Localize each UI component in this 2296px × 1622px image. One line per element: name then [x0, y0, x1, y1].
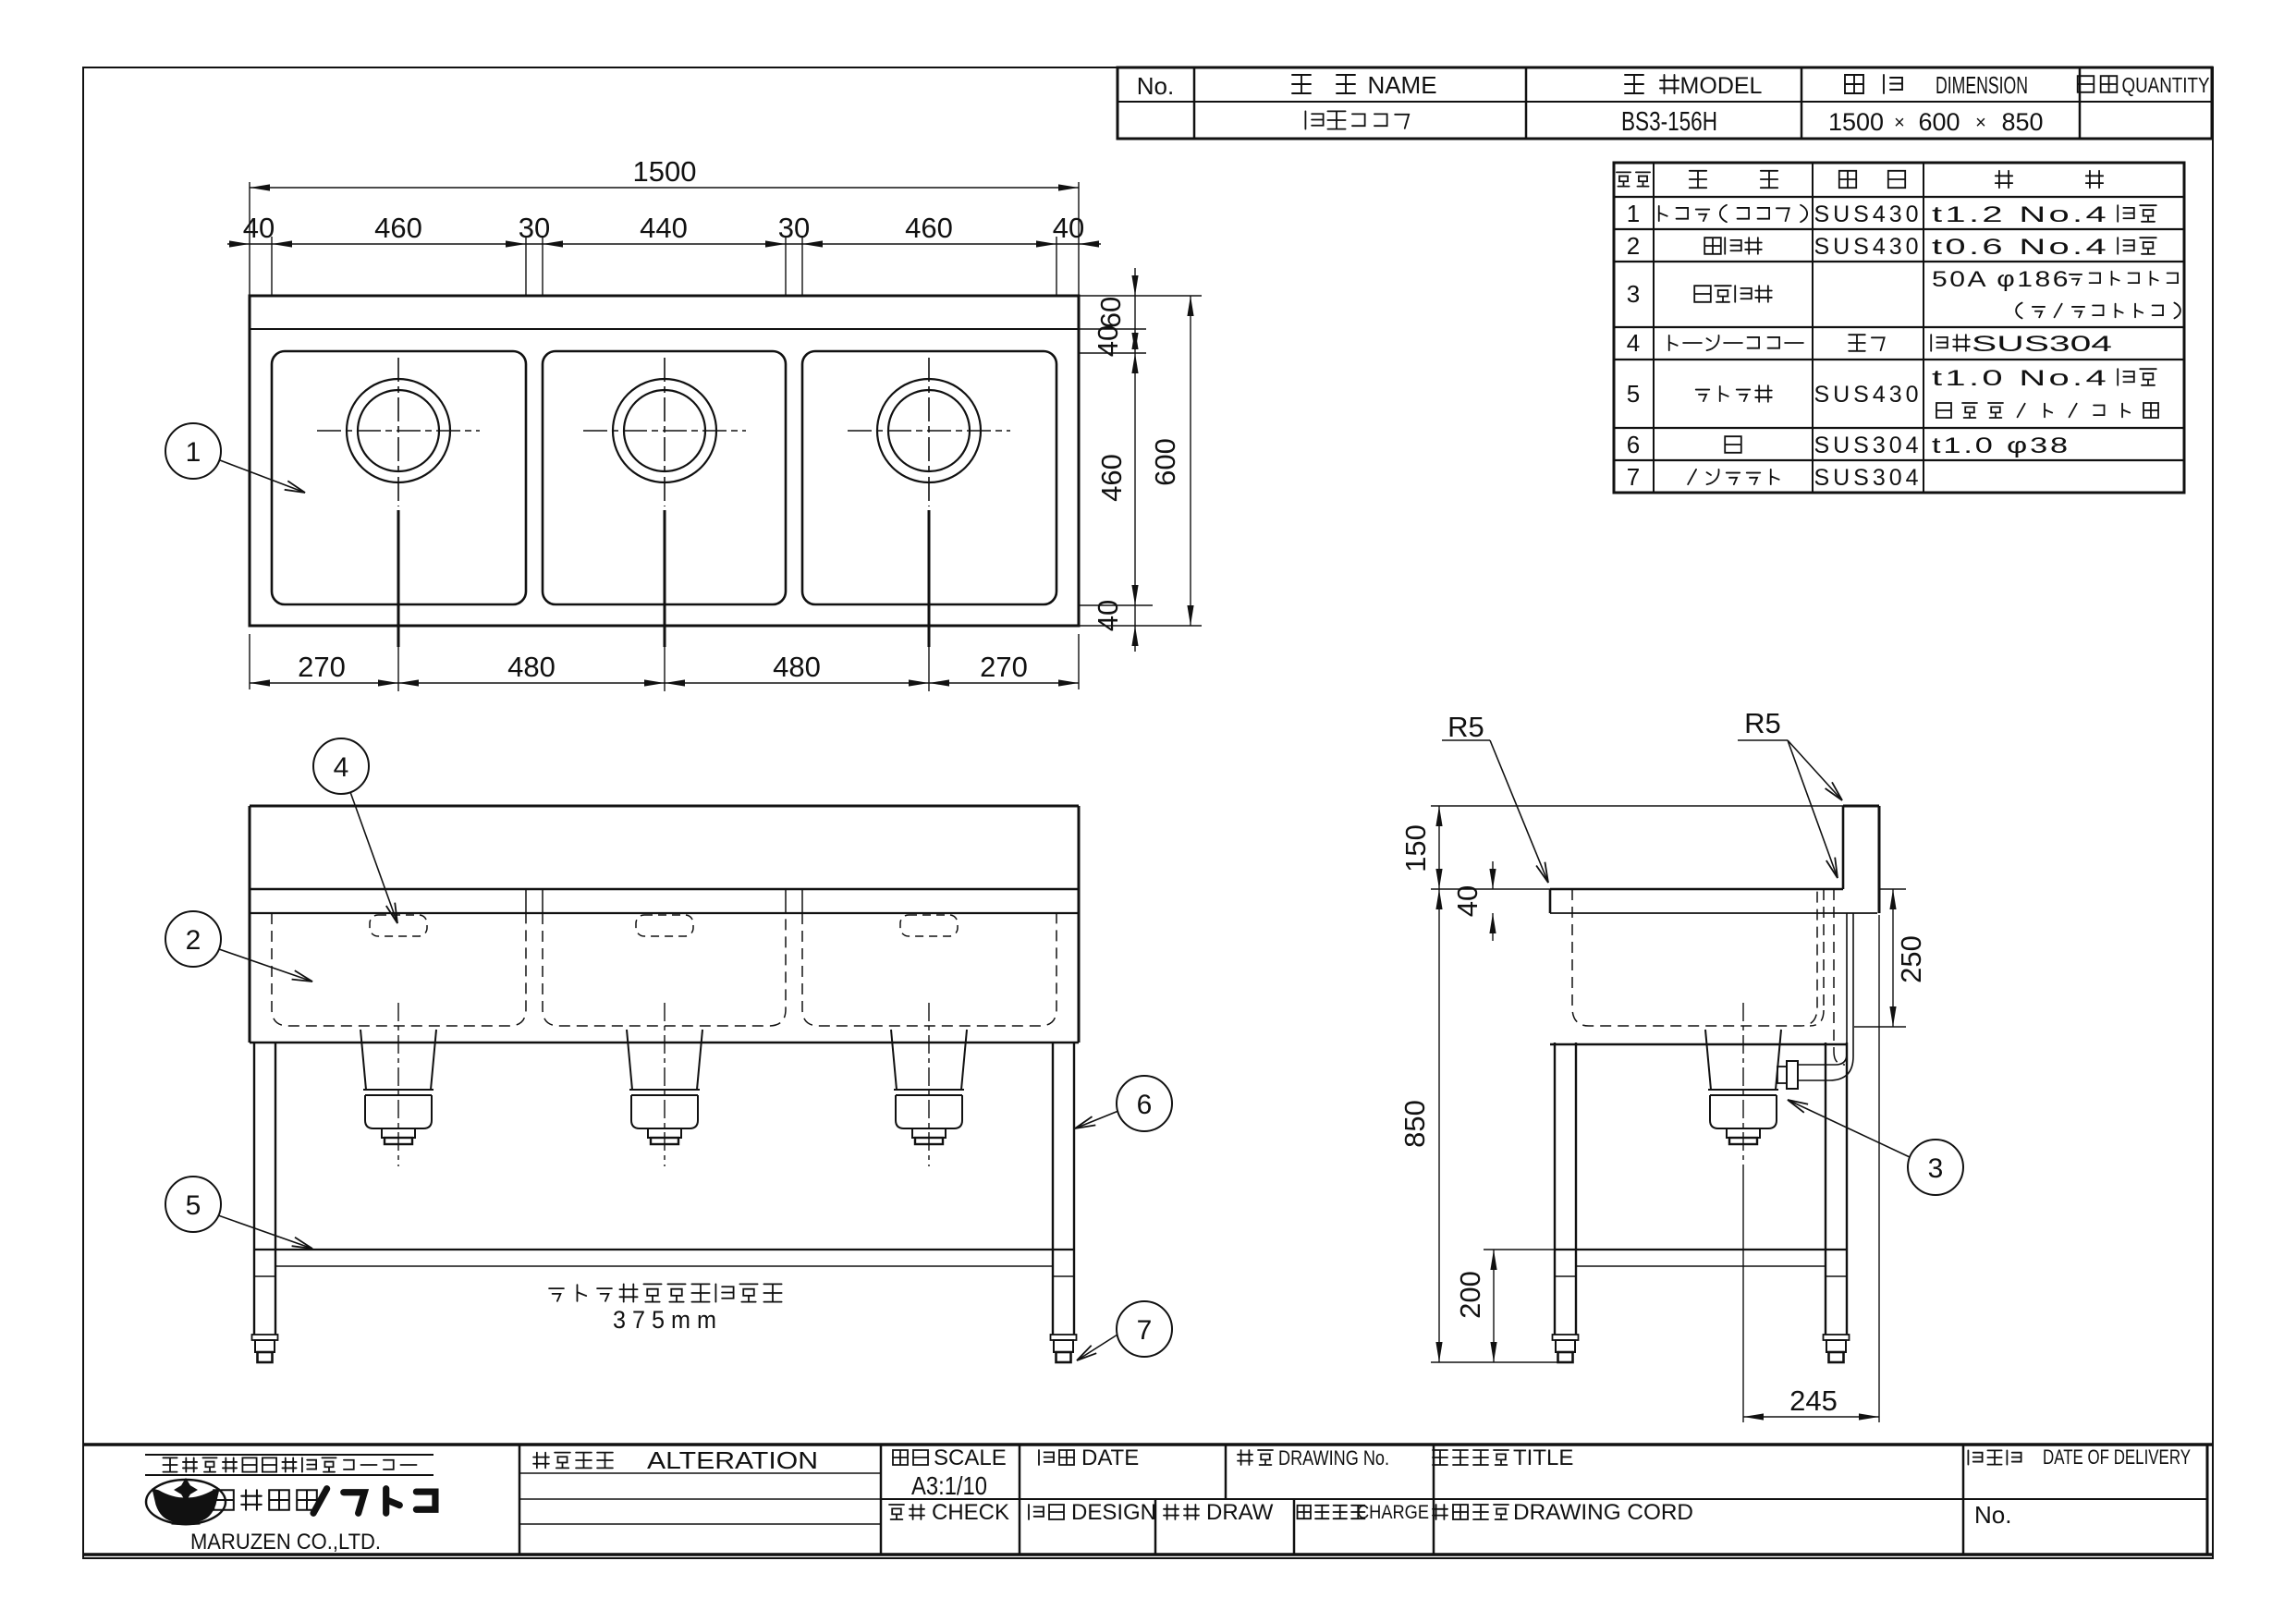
svg-text:×: × [1975, 113, 1986, 133]
svg-text:R5: R5 [1744, 707, 1781, 739]
svg-text:CHECK: CHECK [932, 1500, 1009, 1525]
svg-text:SUS430: SUS430 [1814, 382, 1922, 408]
svg-text:NAME: NAME [1367, 71, 1436, 99]
svg-text:CHARGE: CHARGE [1357, 1502, 1429, 1523]
svg-text:200: 200 [1454, 1271, 1486, 1319]
svg-text:5: 5 [1627, 380, 1640, 408]
svg-text:1: 1 [1627, 200, 1640, 227]
svg-text:40: 40 [243, 212, 275, 244]
svg-text:TITLE: TITLE [1513, 1445, 1573, 1470]
svg-text:ALTERATION: ALTERATION [647, 1446, 818, 1474]
svg-text:440: 440 [640, 212, 688, 244]
svg-text:600: 600 [1918, 108, 1960, 136]
svg-text:245: 245 [1789, 1384, 1838, 1417]
svg-text:5: 5 [186, 1190, 202, 1221]
svg-text:850: 850 [2001, 108, 2043, 136]
svg-text:480: 480 [507, 651, 556, 683]
svg-text:270: 270 [298, 651, 346, 683]
svg-text:1: 1 [186, 437, 202, 468]
svg-text:4: 4 [334, 752, 349, 783]
svg-text:7: 7 [1137, 1315, 1153, 1346]
svg-text:6: 6 [1137, 1090, 1153, 1120]
svg-text:460: 460 [374, 212, 422, 244]
svg-text:2: 2 [1627, 232, 1640, 260]
svg-text:DRAWING CORD: DRAWING CORD [1513, 1500, 1693, 1525]
svg-text:DESIGN: DESIGN [1071, 1500, 1156, 1525]
svg-text:t1.0 φ38: t1.0 φ38 [1932, 433, 2070, 458]
svg-text:No.: No. [1137, 72, 1174, 100]
svg-text:t1.2 No.4: t1.2 No.4 [1932, 202, 2109, 227]
svg-text:No.: No. [1974, 1501, 2011, 1529]
svg-text:QUANTITY: QUANTITY [2122, 73, 2210, 97]
svg-text:3: 3 [1928, 1153, 1944, 1184]
svg-text:40: 40 [1092, 325, 1124, 357]
svg-text:40: 40 [1092, 600, 1124, 631]
svg-text:30: 30 [778, 212, 810, 244]
svg-text:SUS430: SUS430 [1814, 201, 1922, 227]
svg-text:DATE OF DELIVERY: DATE OF DELIVERY [2043, 1445, 2191, 1469]
svg-text:SUS430: SUS430 [1814, 234, 1922, 260]
svg-text:DIMENSION: DIMENSION [1936, 71, 2028, 99]
svg-text:60: 60 [1094, 297, 1127, 328]
svg-text:SUS304: SUS304 [1814, 465, 1922, 491]
svg-text:850: 850 [1398, 1100, 1431, 1148]
svg-text:250: 250 [1895, 935, 1927, 983]
svg-text:40: 40 [1451, 885, 1484, 917]
svg-text:BS3-156H: BS3-156H [1621, 107, 1717, 137]
svg-text:30: 30 [519, 212, 550, 244]
svg-text:SUS304: SUS304 [1814, 433, 1922, 458]
svg-text:460: 460 [1095, 454, 1128, 502]
svg-text:MARUZEN CO.,LTD.: MARUZEN CO.,LTD. [190, 1530, 381, 1555]
svg-text:1500: 1500 [1828, 108, 1884, 136]
svg-text:2: 2 [186, 925, 202, 956]
svg-text:MODEL: MODEL [1680, 73, 1763, 99]
svg-text:150: 150 [1399, 824, 1432, 872]
svg-text:1500: 1500 [633, 155, 697, 188]
svg-text:×: × [1894, 113, 1905, 133]
svg-text:DRAW: DRAW [1206, 1500, 1274, 1525]
svg-text:A3:1/10: A3:1/10 [911, 1471, 987, 1500]
svg-text:DRAWING No.: DRAWING No. [1278, 1446, 1389, 1470]
svg-text:600: 600 [1149, 438, 1181, 486]
svg-text:480: 480 [773, 651, 821, 683]
svg-text:SCALE: SCALE [934, 1445, 1007, 1470]
svg-text:3: 3 [1627, 280, 1640, 308]
svg-text:50A φ186: 50A φ186 [1932, 267, 2070, 292]
svg-text:t1.0 No.4: t1.0 No.4 [1932, 366, 2109, 391]
svg-text:460: 460 [905, 212, 953, 244]
svg-text:7: 7 [1627, 463, 1640, 491]
svg-text:R5: R5 [1447, 711, 1484, 743]
svg-text:DATE: DATE [1081, 1445, 1139, 1470]
svg-text:40: 40 [1053, 212, 1084, 244]
svg-text:3 7 5 m m: 3 7 5 m m [613, 1306, 716, 1334]
svg-text:270: 270 [980, 651, 1028, 683]
svg-text:6: 6 [1627, 431, 1640, 458]
svg-text:4: 4 [1627, 329, 1640, 357]
svg-text:t0.6 No.4: t0.6 No.4 [1932, 235, 2109, 260]
svg-text:SUS304: SUS304 [1972, 332, 2112, 357]
